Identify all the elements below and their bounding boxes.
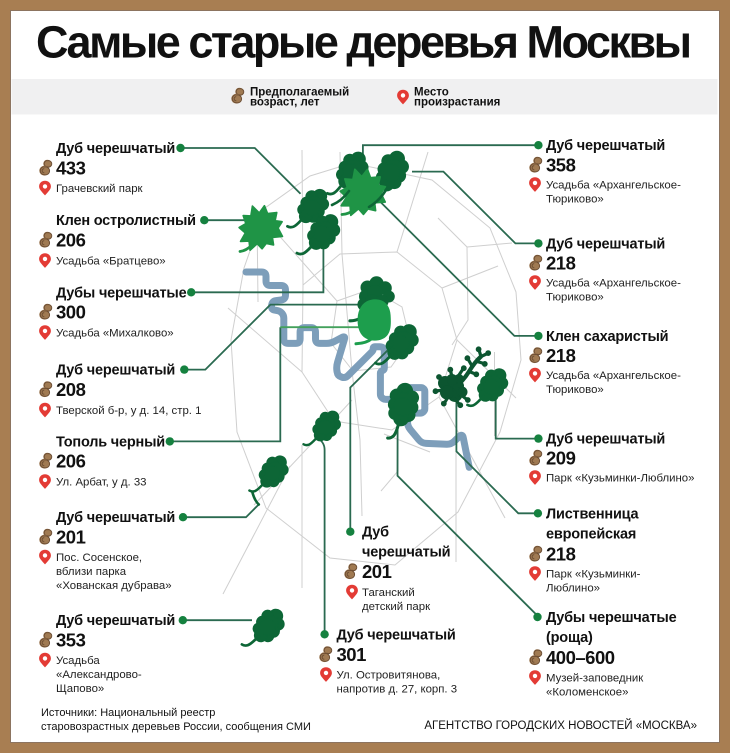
svg-text:218: 218 — [546, 253, 576, 274]
svg-text:Тюриково»: Тюриково» — [546, 292, 604, 304]
svg-text:Дуб: Дуб — [362, 525, 389, 541]
svg-text:Лиственница: Лиственница — [546, 506, 640, 522]
svg-text:218: 218 — [546, 544, 576, 565]
svg-text:Тополь черный: Тополь черный — [56, 434, 165, 450]
svg-text:Дуб черешчатый: Дуб черешчатый — [56, 141, 175, 157]
svg-text:Тюриково»: Тюриково» — [546, 194, 604, 206]
svg-text:Усадьба «Архангельское-: Усадьба «Архангельское- — [546, 278, 681, 290]
svg-text:Музей-заповедник: Музей-заповедник — [546, 673, 644, 685]
svg-text:Тверской б-р, у д. 14, стр. 1: Тверской б-р, у д. 14, стр. 1 — [56, 405, 201, 417]
svg-text:Дуб черешчатый: Дуб черешчатый — [546, 236, 665, 252]
svg-text:АГЕНТСТВО ГОРОДСКИХ НОВОСТЕЙ «: АГЕНТСТВО ГОРОДСКИХ НОВОСТЕЙ «МОСКВА» — [424, 719, 697, 732]
svg-text:Дуб черешчатый: Дуб черешчатый — [546, 138, 665, 154]
svg-text:Клен сахаристый: Клен сахаристый — [546, 329, 668, 345]
svg-text:черешчатый: черешчатый — [362, 545, 450, 561]
svg-text:европейская: европейская — [546, 526, 636, 542]
svg-text:358: 358 — [546, 155, 576, 176]
svg-text:напротив д. 27, корп. 3: напротив д. 27, корп. 3 — [337, 684, 458, 696]
svg-text:301: 301 — [337, 644, 367, 665]
svg-text:Усадьба «Михалково»: Усадьба «Михалково» — [56, 328, 174, 340]
svg-text:201: 201 — [56, 527, 86, 548]
svg-text:Дуб черешчатый: Дуб черешчатый — [546, 432, 665, 448]
svg-text:Дубы черешчатые: Дубы черешчатые — [546, 610, 677, 626]
svg-text:Щапово»: Щапово» — [56, 683, 104, 695]
svg-text:детский парк: детский парк — [362, 601, 431, 613]
svg-text:Усадьба «Братцево»: Усадьба «Братцево» — [56, 256, 166, 268]
svg-text:Усадьба «Архангельское-: Усадьба «Архангельское- — [546, 180, 681, 192]
svg-text:Таганский: Таганский — [362, 587, 415, 599]
svg-text:433: 433 — [56, 158, 86, 179]
svg-text:возраст, лет: возраст, лет — [250, 97, 320, 109]
svg-text:Дуб черешчатый: Дуб черешчатый — [56, 510, 175, 526]
svg-text:Тюриково»: Тюриково» — [546, 384, 604, 396]
svg-text:Дубы черешчатые: Дубы черешчатые — [56, 285, 187, 301]
svg-text:Дуб черешчатый: Дуб черешчатый — [56, 613, 175, 629]
svg-text:Парк «Кузьминки-Люблино»: Парк «Кузьминки-Люблино» — [546, 473, 694, 485]
svg-text:Усадьба «Архангельское-: Усадьба «Архангельское- — [546, 370, 681, 382]
svg-text:Ул. Арбат, у д. 33: Ул. Арбат, у д. 33 — [56, 477, 147, 489]
svg-text:206: 206 — [56, 230, 86, 251]
svg-text:Дуб черешчатый: Дуб черешчатый — [337, 627, 456, 643]
svg-text:206: 206 — [56, 451, 86, 472]
svg-text:«Александрово-: «Александрово- — [56, 669, 142, 681]
svg-text:(роща): (роща) — [546, 630, 593, 646]
svg-text:Люблино»: Люблино» — [546, 583, 600, 595]
svg-text:старовозрастных деревьев Росси: старовозрастных деревьев России, сообщен… — [41, 721, 311, 733]
svg-text:Дуб черешчатый: Дуб черешчатый — [56, 363, 175, 379]
svg-text:209: 209 — [546, 448, 576, 469]
svg-text:«Хованская дубрава»: «Хованская дубрава» — [56, 580, 172, 592]
svg-text:201: 201 — [362, 561, 392, 582]
svg-text:400–600: 400–600 — [546, 647, 615, 668]
svg-text:Пос. Сосенское,: Пос. Сосенское, — [56, 552, 142, 564]
svg-text:Источники: Национальный реестр: Источники: Национальный реестр — [41, 707, 215, 719]
svg-text:Парк «Кузьминки-: Парк «Кузьминки- — [546, 569, 641, 581]
svg-text:Клен остролистный: Клен остролистный — [56, 213, 196, 229]
svg-text:Ул. Островитянова,: Ул. Островитянова, — [337, 670, 441, 682]
svg-text:353: 353 — [56, 630, 86, 651]
svg-text:208: 208 — [56, 379, 86, 400]
svg-text:Самые старые деревья Москвы: Самые старые деревья Москвы — [36, 17, 690, 68]
svg-text:вблизи парка: вблизи парка — [56, 566, 127, 578]
svg-text:Грачевский парк: Грачевский парк — [56, 183, 144, 195]
svg-text:произрастания: произрастания — [414, 97, 500, 109]
svg-text:«Коломенское»: «Коломенское» — [546, 687, 628, 699]
svg-text:218: 218 — [546, 345, 576, 366]
svg-text:300: 300 — [56, 302, 86, 323]
svg-text:Усадьба: Усадьба — [56, 655, 100, 667]
